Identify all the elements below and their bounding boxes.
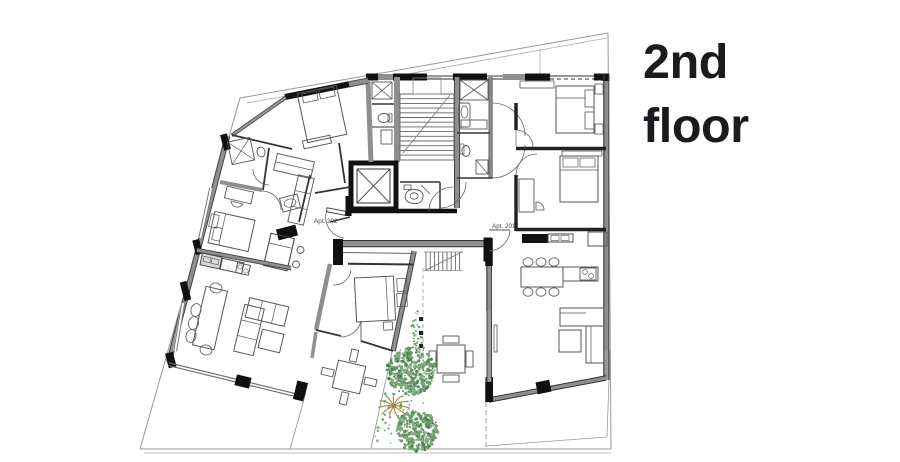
svg-text:Apt. 202: Apt. 202 [314, 218, 338, 225]
svg-text:Apt. 201: Apt. 201 [492, 223, 516, 230]
